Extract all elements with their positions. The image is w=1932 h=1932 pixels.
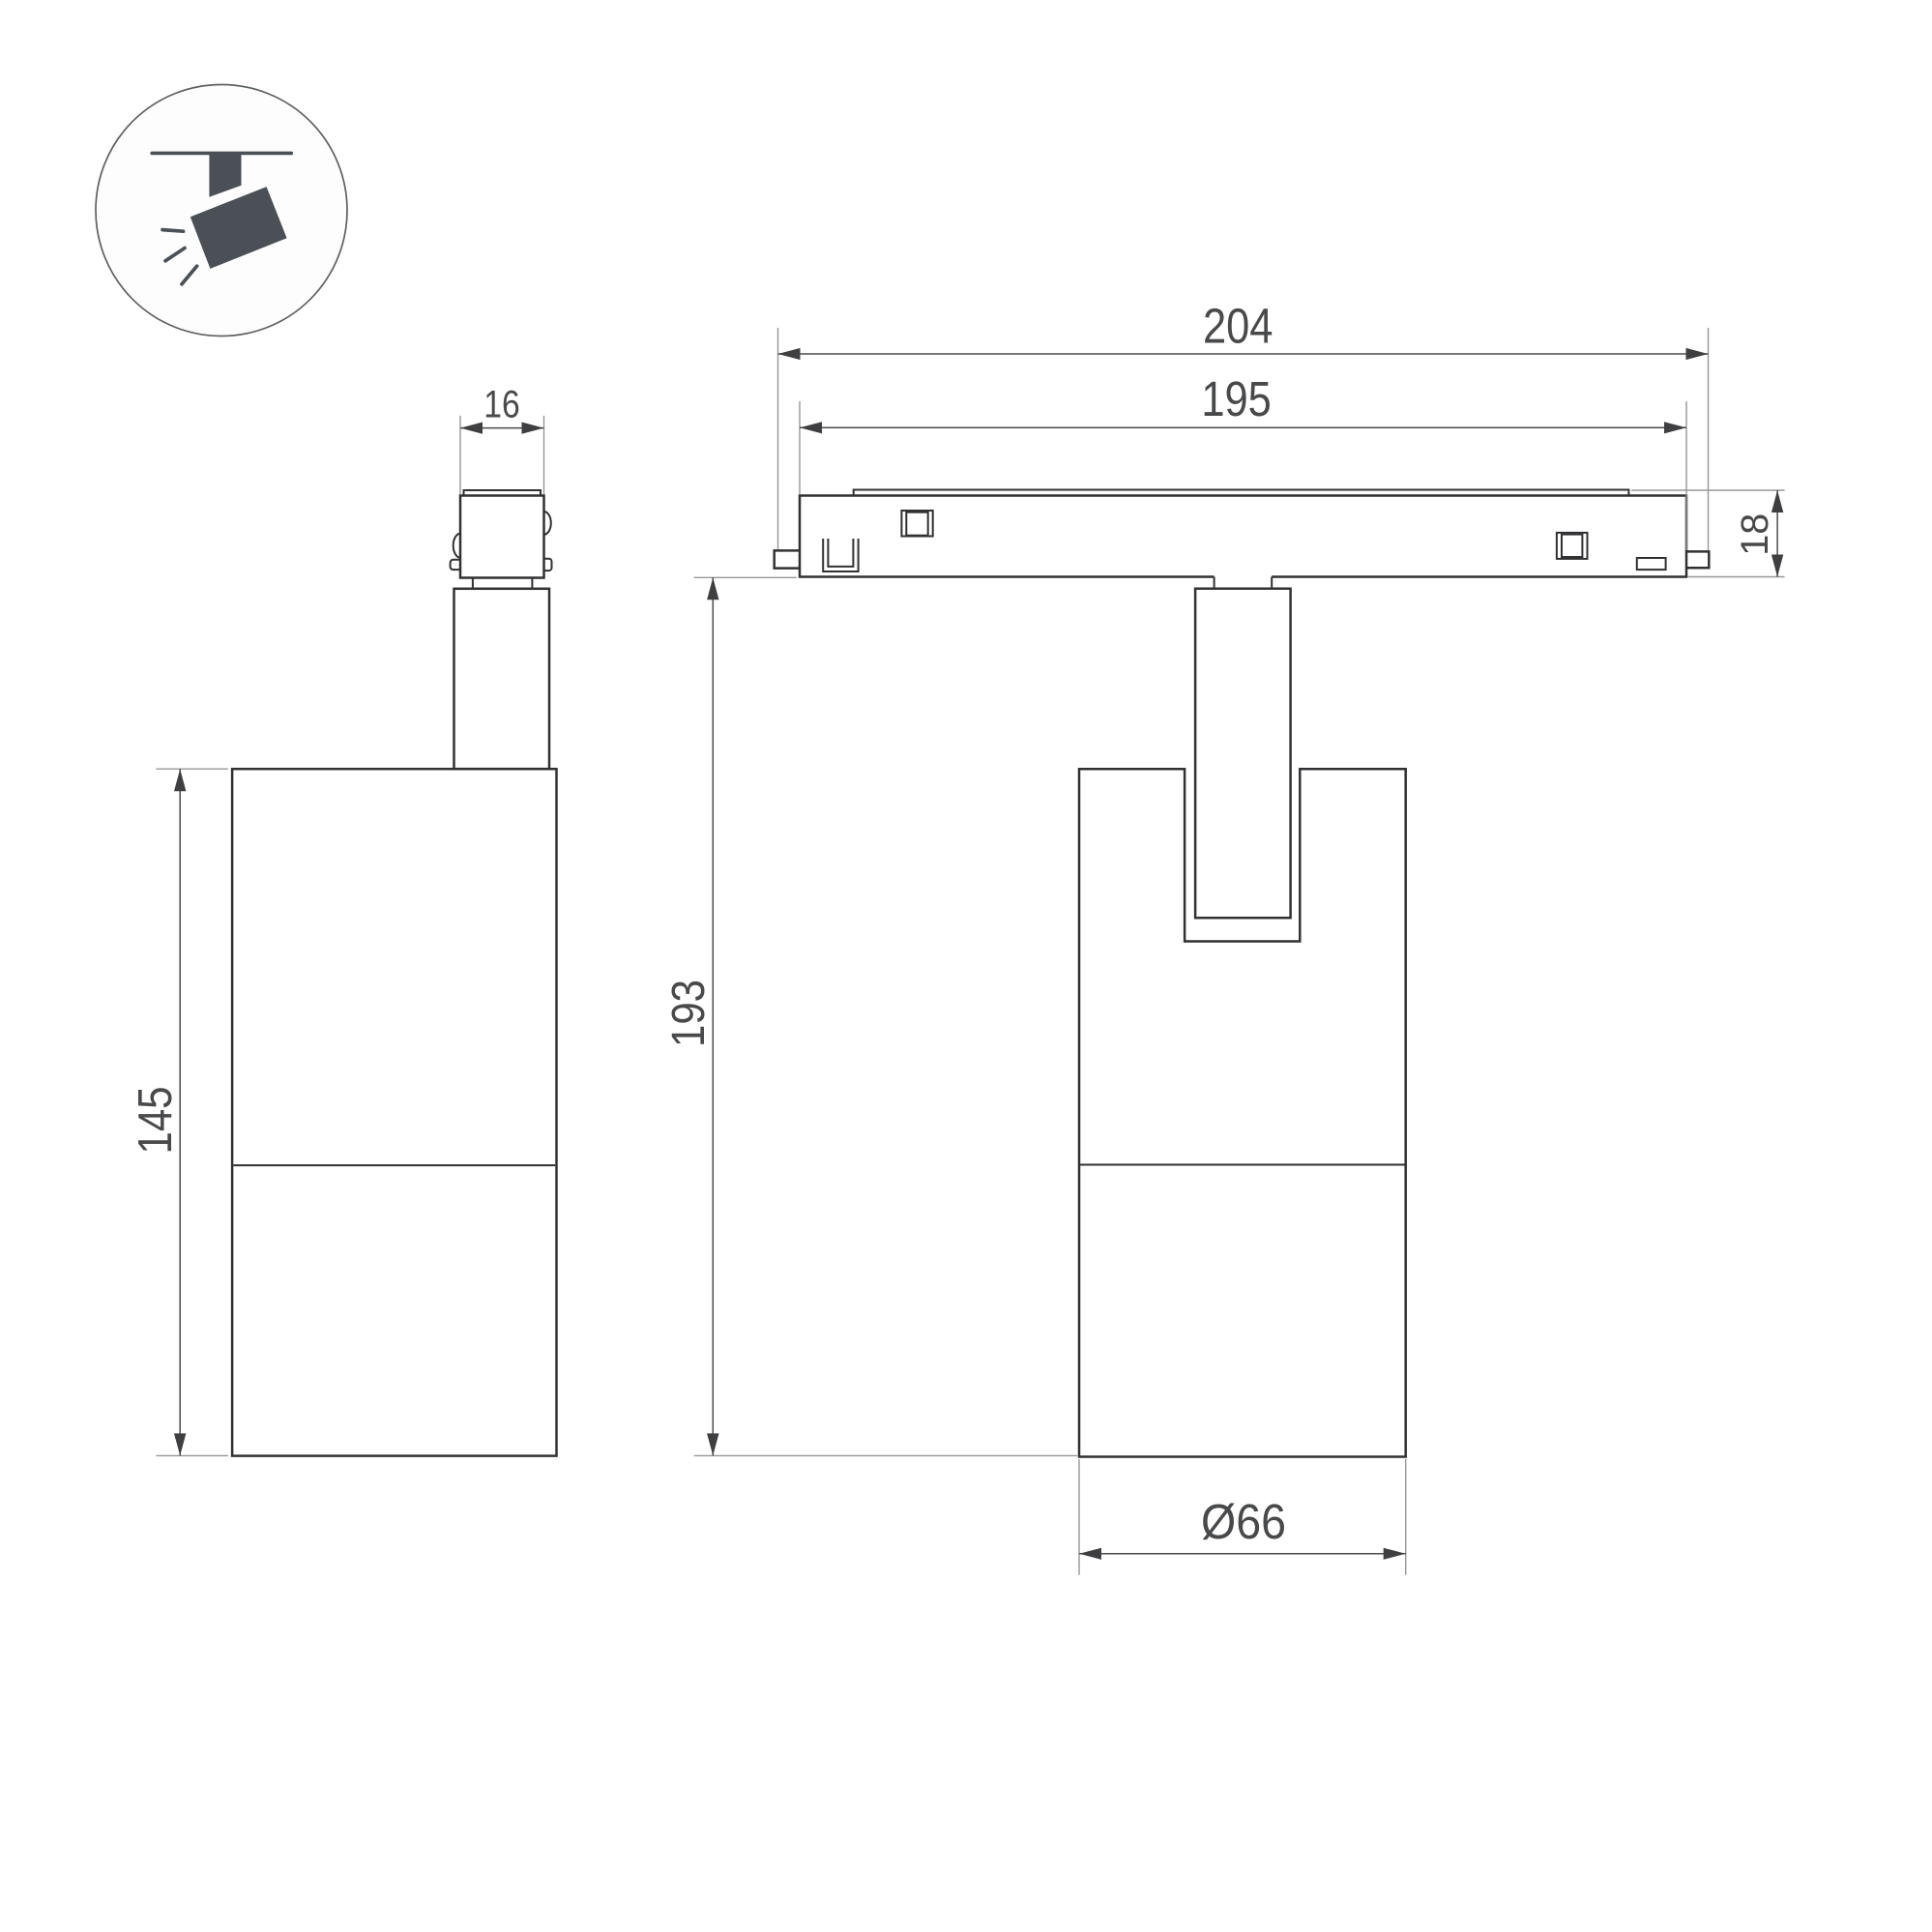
svg-text:193: 193	[663, 980, 715, 1047]
svg-text:18: 18	[1734, 513, 1776, 556]
svg-text:204: 204	[1203, 299, 1273, 354]
svg-text:195: 195	[1201, 371, 1272, 426]
svg-text:16: 16	[483, 384, 519, 426]
svg-text:Ø66: Ø66	[1201, 1494, 1286, 1549]
svg-text:145: 145	[130, 1087, 182, 1155]
